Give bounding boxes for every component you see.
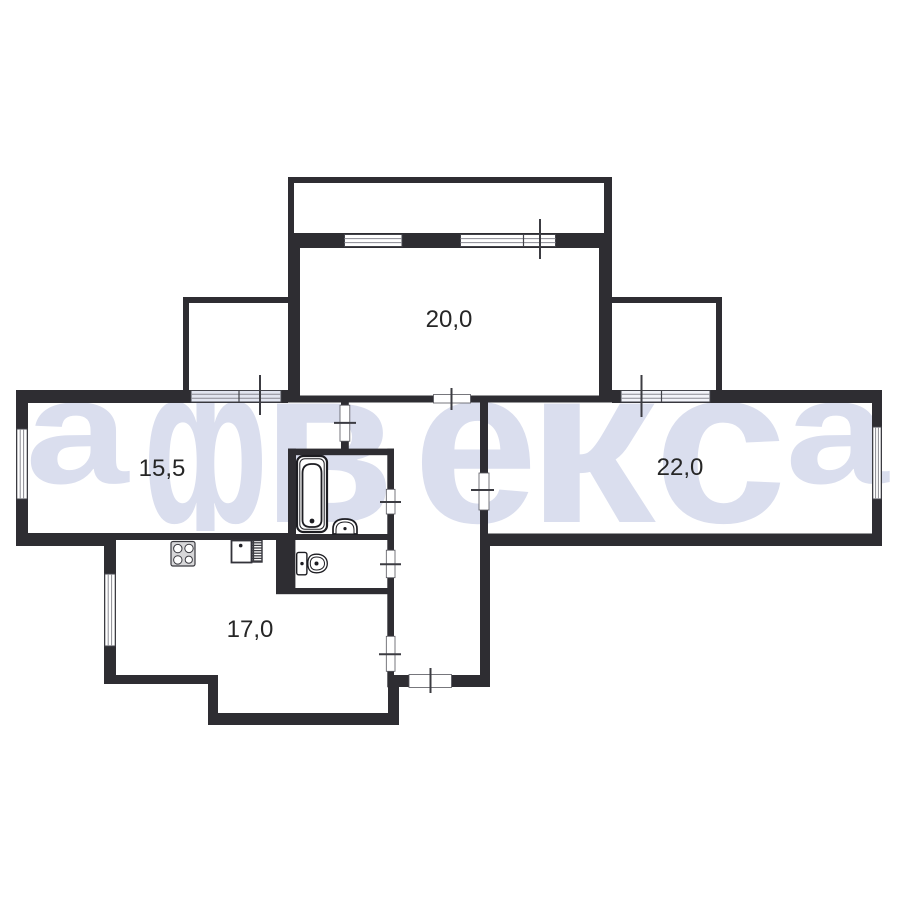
svg-text:22,0: 22,0: [657, 454, 704, 481]
svg-text:17,0: 17,0: [227, 616, 274, 643]
svg-text:20,0: 20,0: [426, 306, 473, 333]
svg-text:15,5: 15,5: [139, 455, 186, 482]
